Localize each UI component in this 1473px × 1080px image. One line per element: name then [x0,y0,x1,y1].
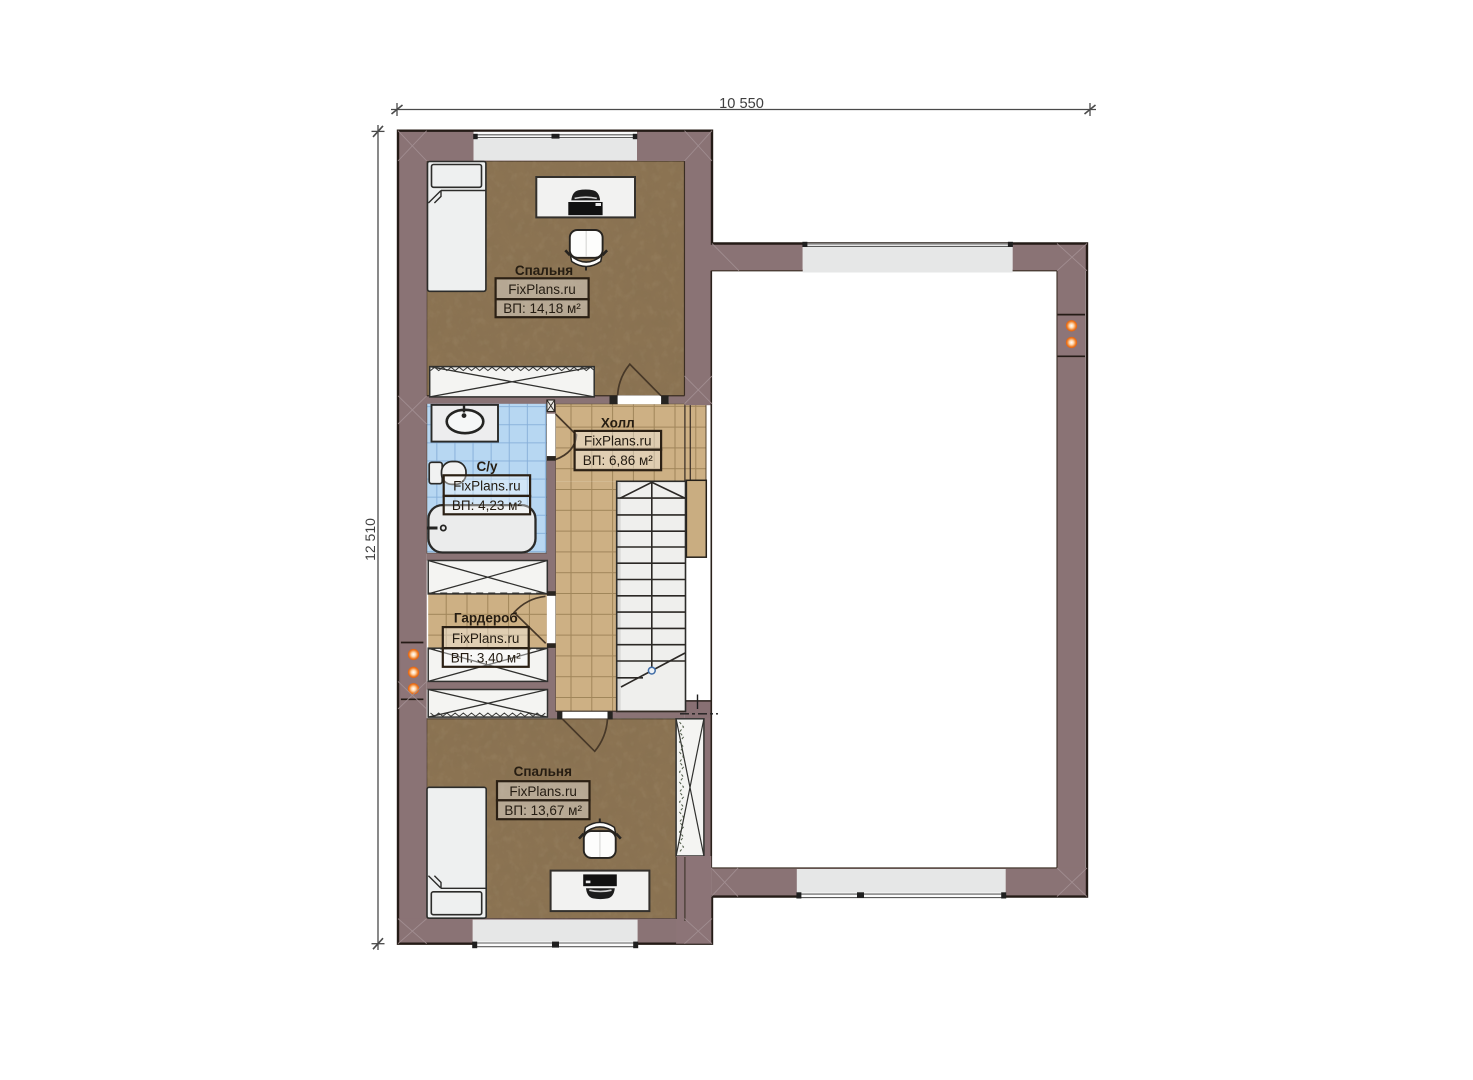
svg-text:ВП: 13,67 м²: ВП: 13,67 м² [504,803,582,818]
svg-text:Спальня: Спальня [515,263,573,278]
svg-text:ВП: 3,40 м²: ВП: 3,40 м² [451,650,522,665]
svg-text:Холл: Холл [601,416,635,431]
svg-text:С/у: С/у [476,459,498,474]
svg-text:FixPlans.ru: FixPlans.ru [453,479,521,494]
svg-text:ВП: 14,18 м²: ВП: 14,18 м² [503,301,581,316]
svg-text:Спальня: Спальня [514,764,572,779]
svg-text:FixPlans.ru: FixPlans.ru [509,784,577,799]
svg-text:10 550: 10 550 [719,96,764,112]
svg-text:FixPlans.ru: FixPlans.ru [584,433,652,448]
svg-text:ВП: 4,23 м²: ВП: 4,23 м² [452,498,523,513]
svg-text:FixPlans.ru: FixPlans.ru [452,631,520,646]
svg-text:FixPlans.ru: FixPlans.ru [508,282,576,297]
svg-text:12 510: 12 510 [362,518,378,561]
svg-text:ВП: 6,86 м²: ВП: 6,86 м² [583,453,654,468]
svg-text:Гардероб: Гардероб [454,611,518,626]
